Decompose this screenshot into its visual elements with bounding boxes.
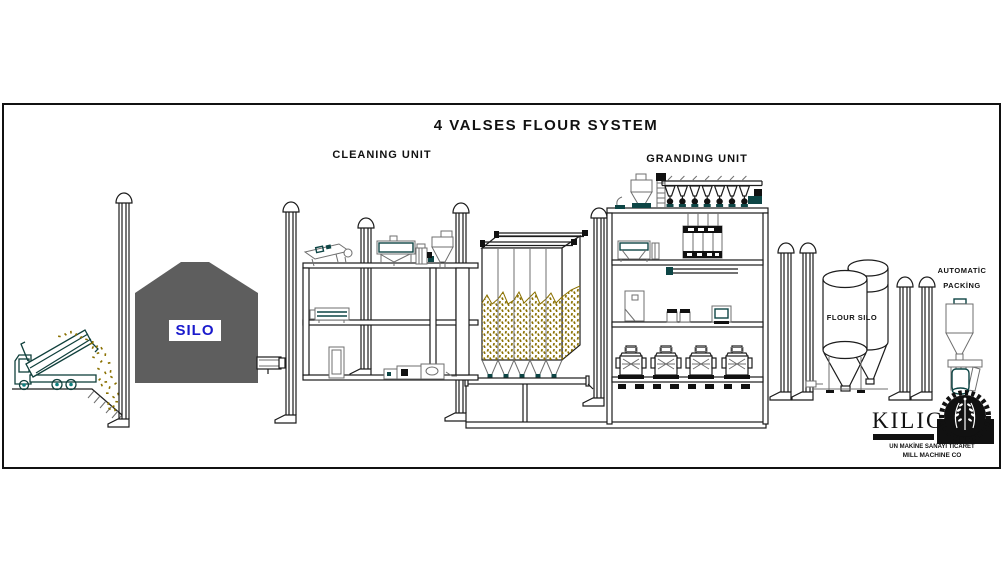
diagram-svg	[0, 0, 1004, 573]
packing-label-line1: AUTOMATİC	[922, 266, 1002, 275]
page-title: 4 VALSES FLOUR SYSTEM	[396, 117, 696, 134]
logo-subline2: MILL MACHINE CO	[870, 452, 994, 459]
flour-system-drawing: 4 VALSES FLOUR SYSTEM CLEANING UNIT GRAN…	[0, 0, 1004, 573]
tempering-bin	[465, 230, 593, 422]
logo-underline	[873, 434, 934, 440]
logo-brand-text: KILIC	[872, 408, 936, 434]
granding-roof-machines	[615, 173, 762, 209]
granding-interior-machines	[618, 213, 738, 324]
logo-subline1: UN MAKİNE SANAYİ TİCARET	[870, 444, 994, 450]
flour-silo-label: FLOUR SILO	[812, 313, 892, 322]
silo-label: SILO	[169, 320, 221, 341]
cleaning-unit-label: CLEANING UNIT	[307, 149, 457, 161]
intake-pit	[12, 389, 122, 422]
flour-silo-tanks	[806, 260, 888, 393]
packing-machine	[946, 299, 982, 394]
packing-label-line2: PACKİNG	[922, 281, 1002, 290]
granding-unit-label: GRANDING UNIT	[621, 153, 773, 165]
ground-duct	[466, 422, 766, 428]
